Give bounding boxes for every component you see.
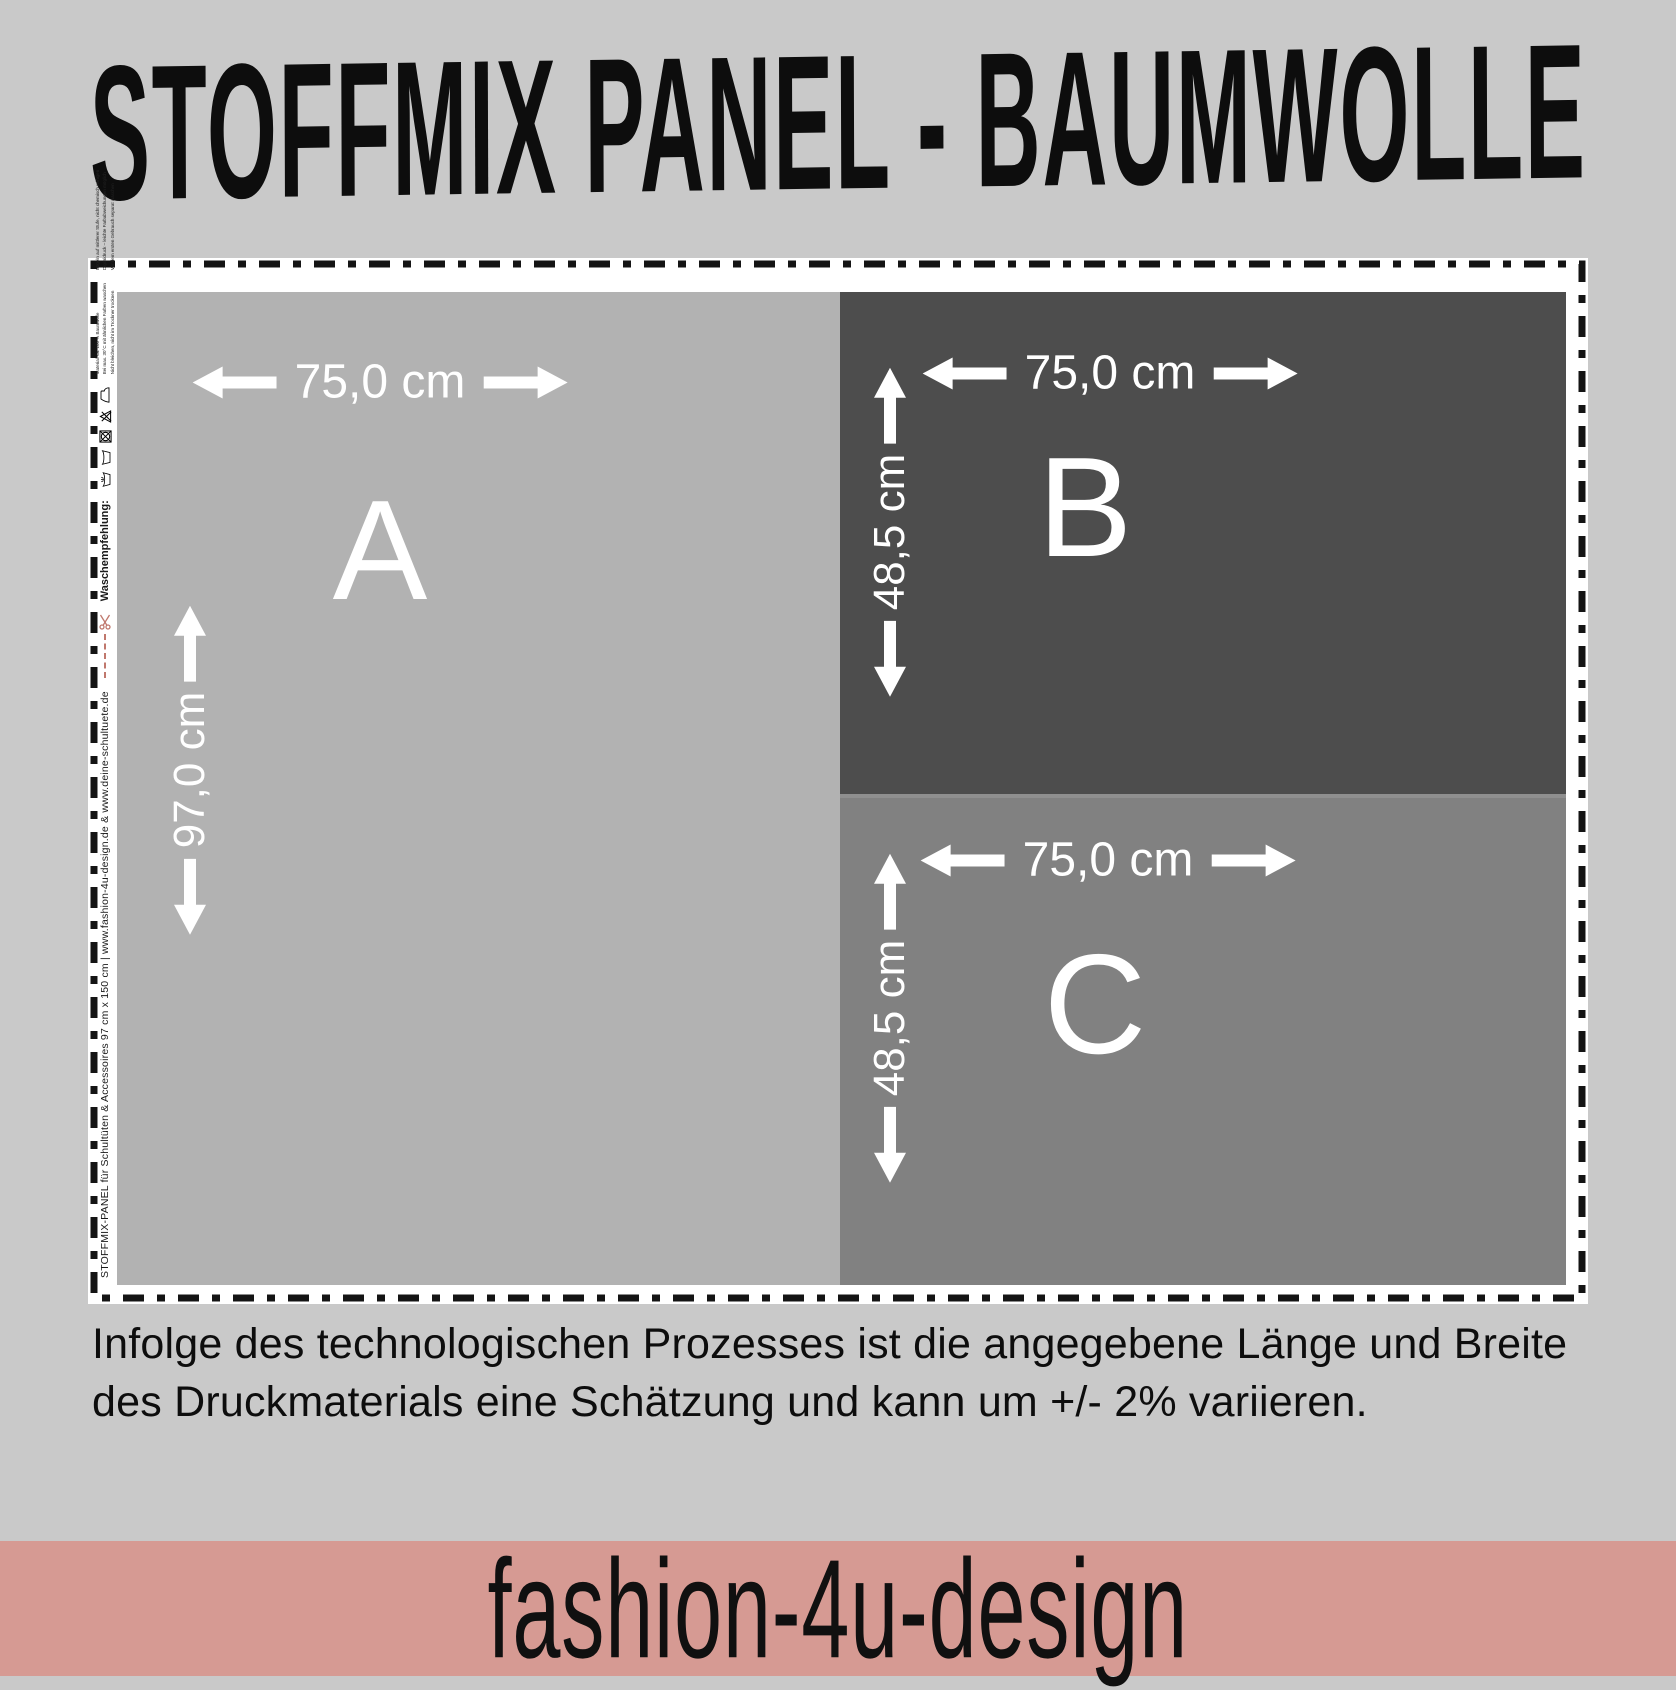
- arrow-right-icon: [483, 365, 567, 399]
- page-title-text: STOFFMIX PANEL - BAUMWOLLE: [89, 1, 1586, 245]
- panel-B-width-value: 75,0 cm: [1025, 346, 1196, 401]
- fine-print-line: Digitaldruck – leichte Farbabweichungen …: [102, 170, 108, 270]
- panel-C-height-dimension: 48,5 cm: [868, 854, 912, 1183]
- panel-B-height-dimension: 48,5 cm: [868, 368, 912, 697]
- selvage-fine-print-col-1: Material: ca. 100 % Baumwolle Bei max. 3…: [95, 283, 116, 374]
- selvage-info-text: STOFFMIX-PANEL für Schultüten & Accessoi…: [99, 691, 111, 1278]
- arrow-up-icon: [873, 854, 907, 930]
- brand-name: fashion-4u-design: [488, 1527, 1188, 1690]
- fabric-sheet: STOFFMIX-PANEL für Schultüten & Accessoi…: [88, 258, 1588, 1304]
- fine-print-line: Nicht bleichen, nicht im Trockner trockn…: [110, 283, 116, 374]
- selvage-fine-print-col-2: Bügeln auf mittlerer Stufe, nicht chemis…: [95, 170, 116, 270]
- panel-C-height-value: 48,5 cm: [868, 940, 912, 1097]
- panel-C-width-dimension: 75,0 cm: [921, 833, 1296, 888]
- arrow-down-icon: [873, 1106, 907, 1182]
- iron-icon: [99, 387, 111, 403]
- no-bleach-icon: [99, 410, 112, 423]
- brand-banner: fashion-4u-design: [0, 1541, 1676, 1676]
- fine-print-line: Bei max. 30°C mit ähnlichen Farben wasch…: [102, 283, 108, 374]
- arrow-up-icon: [873, 368, 907, 444]
- fine-print-line: Vor dem ersten Gebrauch separat waschen: [110, 170, 116, 270]
- wash-tub-icon: [99, 450, 112, 465]
- arrow-down-icon: [873, 620, 907, 696]
- page-background: { "title": "STOFFMIX PANEL - BAUMWOLLE",…: [0, 0, 1676, 1676]
- panel-B: 75,0 cm B 48,5 cm: [840, 292, 1566, 794]
- arrow-left-icon: [923, 356, 1007, 390]
- panel-A-height-value: 97,0 cm: [168, 692, 212, 849]
- arrow-left-icon: [921, 843, 1005, 877]
- disclaimer-text: Infolge des technologischen Prozesses is…: [92, 1316, 1567, 1431]
- header: STOFFMIX PANEL - BAUMWOLLE: [0, 0, 1676, 245]
- panel-B-width-dimension: 75,0 cm: [923, 346, 1298, 401]
- selvage-strip: STOFFMIX-PANEL für Schultüten & Accessoi…: [93, 267, 117, 1299]
- fine-print-line: Material: ca. 100 % Baumwolle: [95, 283, 101, 374]
- panel-A-width-value: 75,0 cm: [295, 355, 466, 410]
- panel-A-letter: A: [333, 480, 428, 622]
- arrow-down-icon: [173, 858, 207, 934]
- arrow-up-icon: [173, 606, 207, 682]
- panel-A: 75,0 cm A 97,0 cm: [117, 292, 840, 1285]
- panel-C-letter: C: [1044, 934, 1147, 1076]
- wash-recommendation-label: Waschempfehlung:: [99, 500, 111, 601]
- disclaimer-line-1: Infolge des technologischen Prozesses is…: [92, 1320, 1567, 1368]
- panel-A-height-dimension: 97,0 cm: [168, 606, 212, 935]
- fine-print-line: Bügeln auf mittlerer Stufe, nicht chemis…: [95, 170, 101, 270]
- cut-here-mark: [99, 614, 111, 678]
- hand-wash-icon: [99, 472, 112, 487]
- panel-B-height-value: 48,5 cm: [868, 454, 912, 611]
- care-symbols: [99, 387, 112, 487]
- arrow-left-icon: [193, 365, 277, 399]
- page-title: STOFFMIX PANEL - BAUMWOLLE: [0, 36, 1676, 209]
- panel-B-letter: B: [1038, 437, 1133, 579]
- panel-C-width-value: 75,0 cm: [1023, 833, 1194, 888]
- cut-dash-line: [104, 634, 106, 678]
- no-tumble-dry-icon: [99, 430, 112, 443]
- arrow-right-icon: [1213, 356, 1297, 390]
- panel-C: 75,0 cm C 48,5 cm: [840, 794, 1566, 1285]
- arrow-right-icon: [1211, 843, 1295, 877]
- panel-A-width-dimension: 75,0 cm: [193, 355, 568, 410]
- scissors-icon: [99, 614, 111, 630]
- disclaimer-line-2: des Druckmaterials eine Schätzung und ka…: [92, 1378, 1368, 1426]
